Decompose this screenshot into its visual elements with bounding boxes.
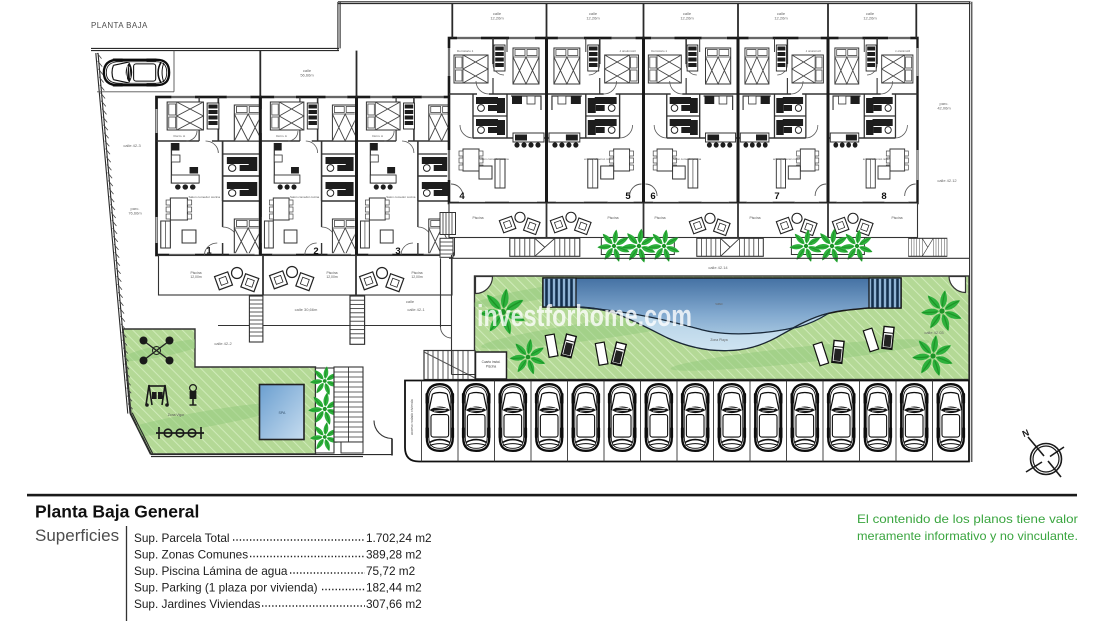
svg-text:Sup. Parcela Total: Sup. Parcela Total bbox=[134, 531, 230, 545]
svg-text:75,72 m2: 75,72 m2 bbox=[366, 564, 415, 578]
svg-text:Planta Baja General: Planta Baja General bbox=[35, 502, 199, 522]
svg-text:182,44 m2: 182,44 m2 bbox=[366, 581, 422, 595]
svg-text:calle: calle bbox=[406, 299, 415, 304]
svg-text:El contenido de los planos tie: El contenido de los planos tiene valor bbox=[857, 512, 1078, 526]
svg-text:12,26m: 12,26m bbox=[586, 16, 600, 21]
svg-text:12,26m: 12,26m bbox=[863, 16, 877, 21]
svg-text:42,06m: 42,06m bbox=[937, 106, 951, 111]
svg-text:389,28 m2: 389,28 m2 bbox=[366, 548, 422, 562]
svg-text:4: 4 bbox=[459, 191, 465, 202]
svg-text:12,00m: 12,00m bbox=[411, 275, 422, 279]
svg-text:12,00m: 12,00m bbox=[190, 275, 201, 279]
svg-text:meramente informativo y no vin: meramente informativo y no vinculante. bbox=[857, 529, 1078, 543]
svg-text:6: 6 bbox=[650, 191, 655, 202]
svg-text:12,00m: 12,00m bbox=[326, 275, 337, 279]
svg-text:calle 42-3: calle 42-3 bbox=[123, 143, 141, 148]
svg-text:calle 42-2: calle 42-2 bbox=[214, 341, 232, 346]
svg-text:Sup. Jardines Viviendas: Sup. Jardines Viviendas bbox=[134, 597, 260, 611]
svg-text:Piscina: Piscina bbox=[608, 216, 619, 220]
svg-text:Sup. Zonas Comunes: Sup. Zonas Comunes bbox=[134, 548, 248, 562]
svg-text:12,26m: 12,26m bbox=[774, 16, 788, 21]
svg-text:vaso: vaso bbox=[715, 302, 722, 306]
svg-text:Piscina: Piscina bbox=[486, 365, 497, 369]
svg-text:1: 1 bbox=[206, 246, 212, 257]
svg-text:calle 42-1: calle 42-1 bbox=[407, 307, 425, 312]
svg-text:SPA: SPA bbox=[279, 411, 287, 415]
svg-text:investforhome.com: investforhome.com bbox=[477, 298, 692, 333]
svg-text:Zona Playa: Zona Playa bbox=[710, 338, 727, 342]
svg-text:calle 42.12: calle 42.12 bbox=[937, 178, 957, 183]
svg-text:calle 42.03: calle 42.03 bbox=[924, 330, 944, 335]
svg-text:12,26m: 12,26m bbox=[680, 16, 694, 21]
svg-text:76,66m: 76,66m bbox=[128, 211, 142, 216]
svg-text:12,26m: 12,26m bbox=[490, 16, 504, 21]
svg-text:Piscina: Piscina bbox=[473, 216, 484, 220]
svg-text:307,66 m2: 307,66 m2 bbox=[366, 597, 422, 611]
svg-text:Zona Vigor: Zona Vigor bbox=[168, 413, 185, 417]
svg-text:8: 8 bbox=[881, 191, 886, 202]
svg-text:56,66m: 56,66m bbox=[300, 73, 314, 78]
svg-text:Piscina: Piscina bbox=[750, 216, 761, 220]
svg-text:Sup. Piscina Lámina de agua: Sup. Piscina Lámina de agua bbox=[134, 564, 288, 578]
svg-text:Cuarto instal.: Cuarto instal. bbox=[482, 360, 501, 364]
svg-text:7: 7 bbox=[774, 191, 779, 202]
svg-text:PLANTA BAJA: PLANTA BAJA bbox=[91, 21, 148, 30]
svg-text:Sup. Parking (1 plaza por vivi: Sup. Parking (1 plaza por vivienda) bbox=[134, 581, 318, 595]
svg-text:1.702,24 m2: 1.702,24 m2 bbox=[366, 531, 432, 545]
svg-text:acceso rodado vivienda: acceso rodado vivienda bbox=[410, 399, 414, 435]
svg-text:Piscina: Piscina bbox=[892, 216, 903, 220]
svg-text:calle 42.14: calle 42.14 bbox=[708, 265, 728, 270]
svg-text:calle 30,66m: calle 30,66m bbox=[295, 307, 318, 312]
svg-text:5: 5 bbox=[625, 191, 631, 202]
svg-text:Superficies: Superficies bbox=[35, 526, 119, 545]
svg-text:Piscina: Piscina bbox=[655, 216, 666, 220]
